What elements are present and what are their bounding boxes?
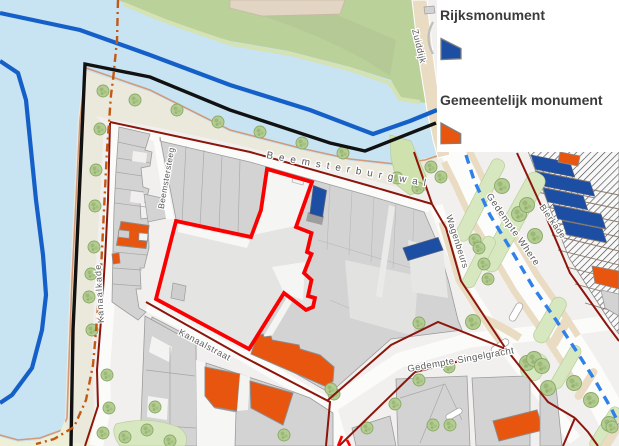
svg-text:Rijksmonument: Rijksmonument: [440, 7, 545, 23]
svg-text:Gemeentelijk monument: Gemeentelijk monument: [440, 92, 603, 108]
